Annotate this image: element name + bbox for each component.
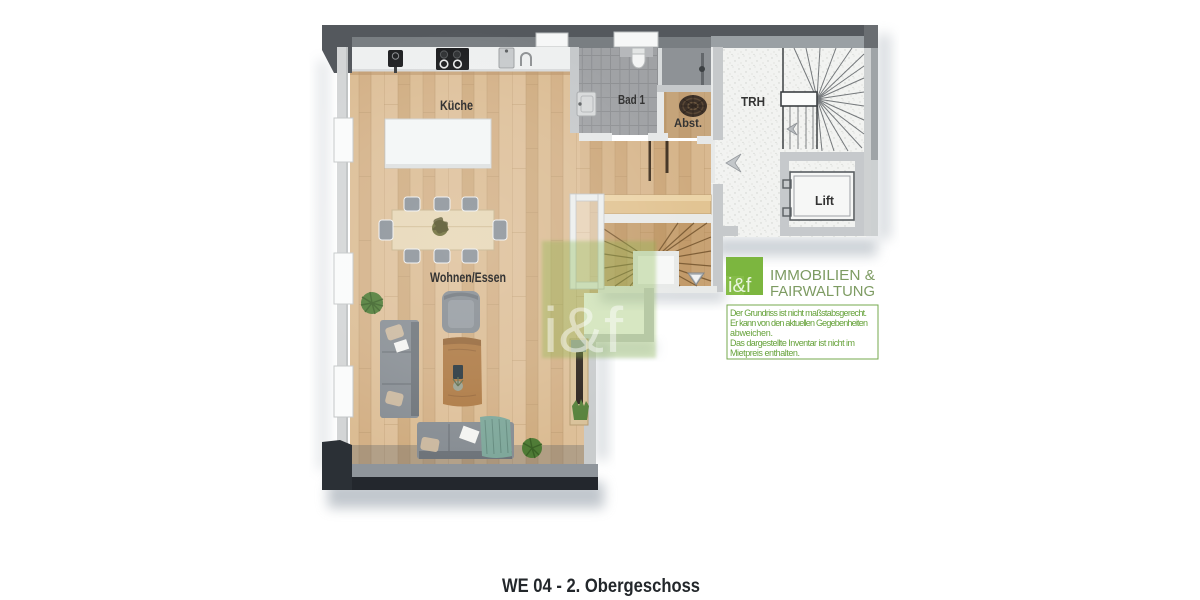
svg-text:Küche: Küche <box>440 97 473 113</box>
svg-text:IMMOBILIEN &: IMMOBILIEN & <box>770 267 875 284</box>
svg-text:i&f: i&f <box>728 275 752 297</box>
svg-text:Das dargestellte Inventar ist: Das dargestellte Inventar ist nicht im <box>730 338 855 348</box>
svg-text:Mietpreis enthalten.: Mietpreis enthalten. <box>730 348 800 358</box>
svg-text:Abst.: Abst. <box>674 116 702 130</box>
svg-text:Bad 1: Bad 1 <box>618 92 645 107</box>
svg-text:FAIRWALTUNG: FAIRWALTUNG <box>770 283 875 300</box>
svg-text:Er kann von den aktuellen Gege: Er kann von den aktuellen Gegebenheiten <box>730 318 868 328</box>
svg-text:WE 04 - 2. Obergeschoss: WE 04 - 2. Obergeschoss <box>502 576 700 597</box>
svg-text:abweichen.: abweichen. <box>730 328 773 338</box>
svg-text:Lift: Lift <box>815 193 835 208</box>
svg-text:TRH: TRH <box>741 94 765 109</box>
svg-text:i&f: i&f <box>543 294 623 366</box>
svg-text:Wohnen/Essen: Wohnen/Essen <box>430 269 506 285</box>
svg-text:Der Grundriss ist nicht maßsta: Der Grundriss ist nicht maßstabsgerecht. <box>730 308 867 318</box>
